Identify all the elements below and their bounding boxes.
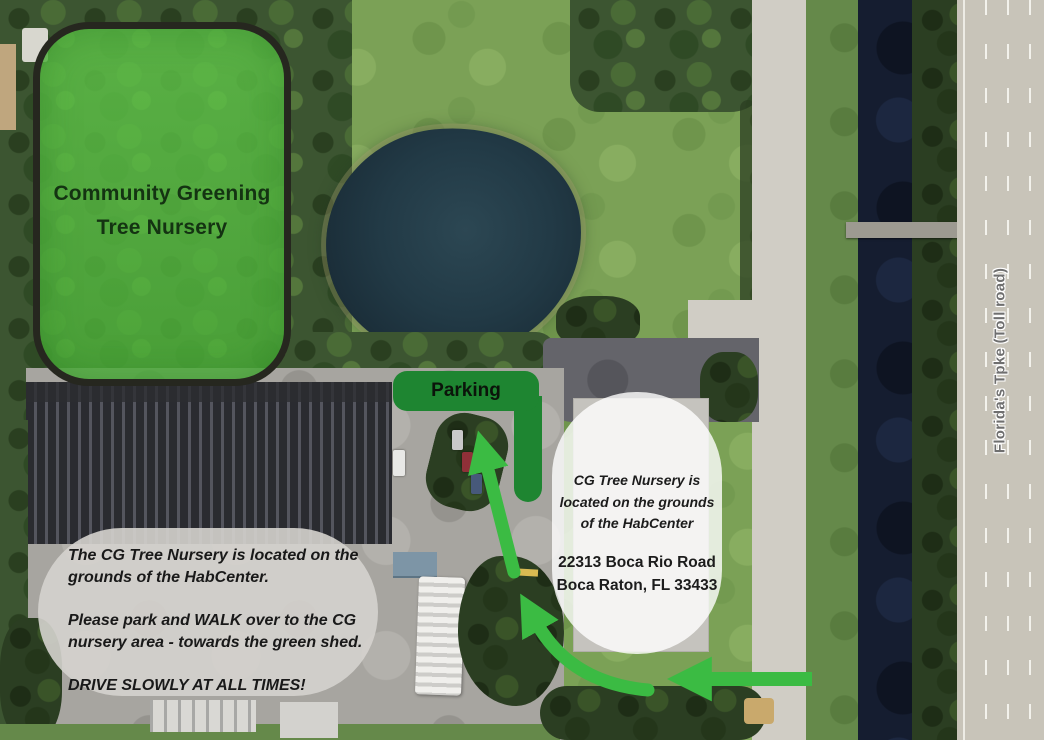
map-canvas: Florida's Tpke (Toll road) Community Gre… xyxy=(0,0,1044,740)
arrow-turn-into-driveway xyxy=(536,622,648,690)
arrow-to-parking xyxy=(486,462,514,572)
route-arrows xyxy=(0,0,1044,740)
